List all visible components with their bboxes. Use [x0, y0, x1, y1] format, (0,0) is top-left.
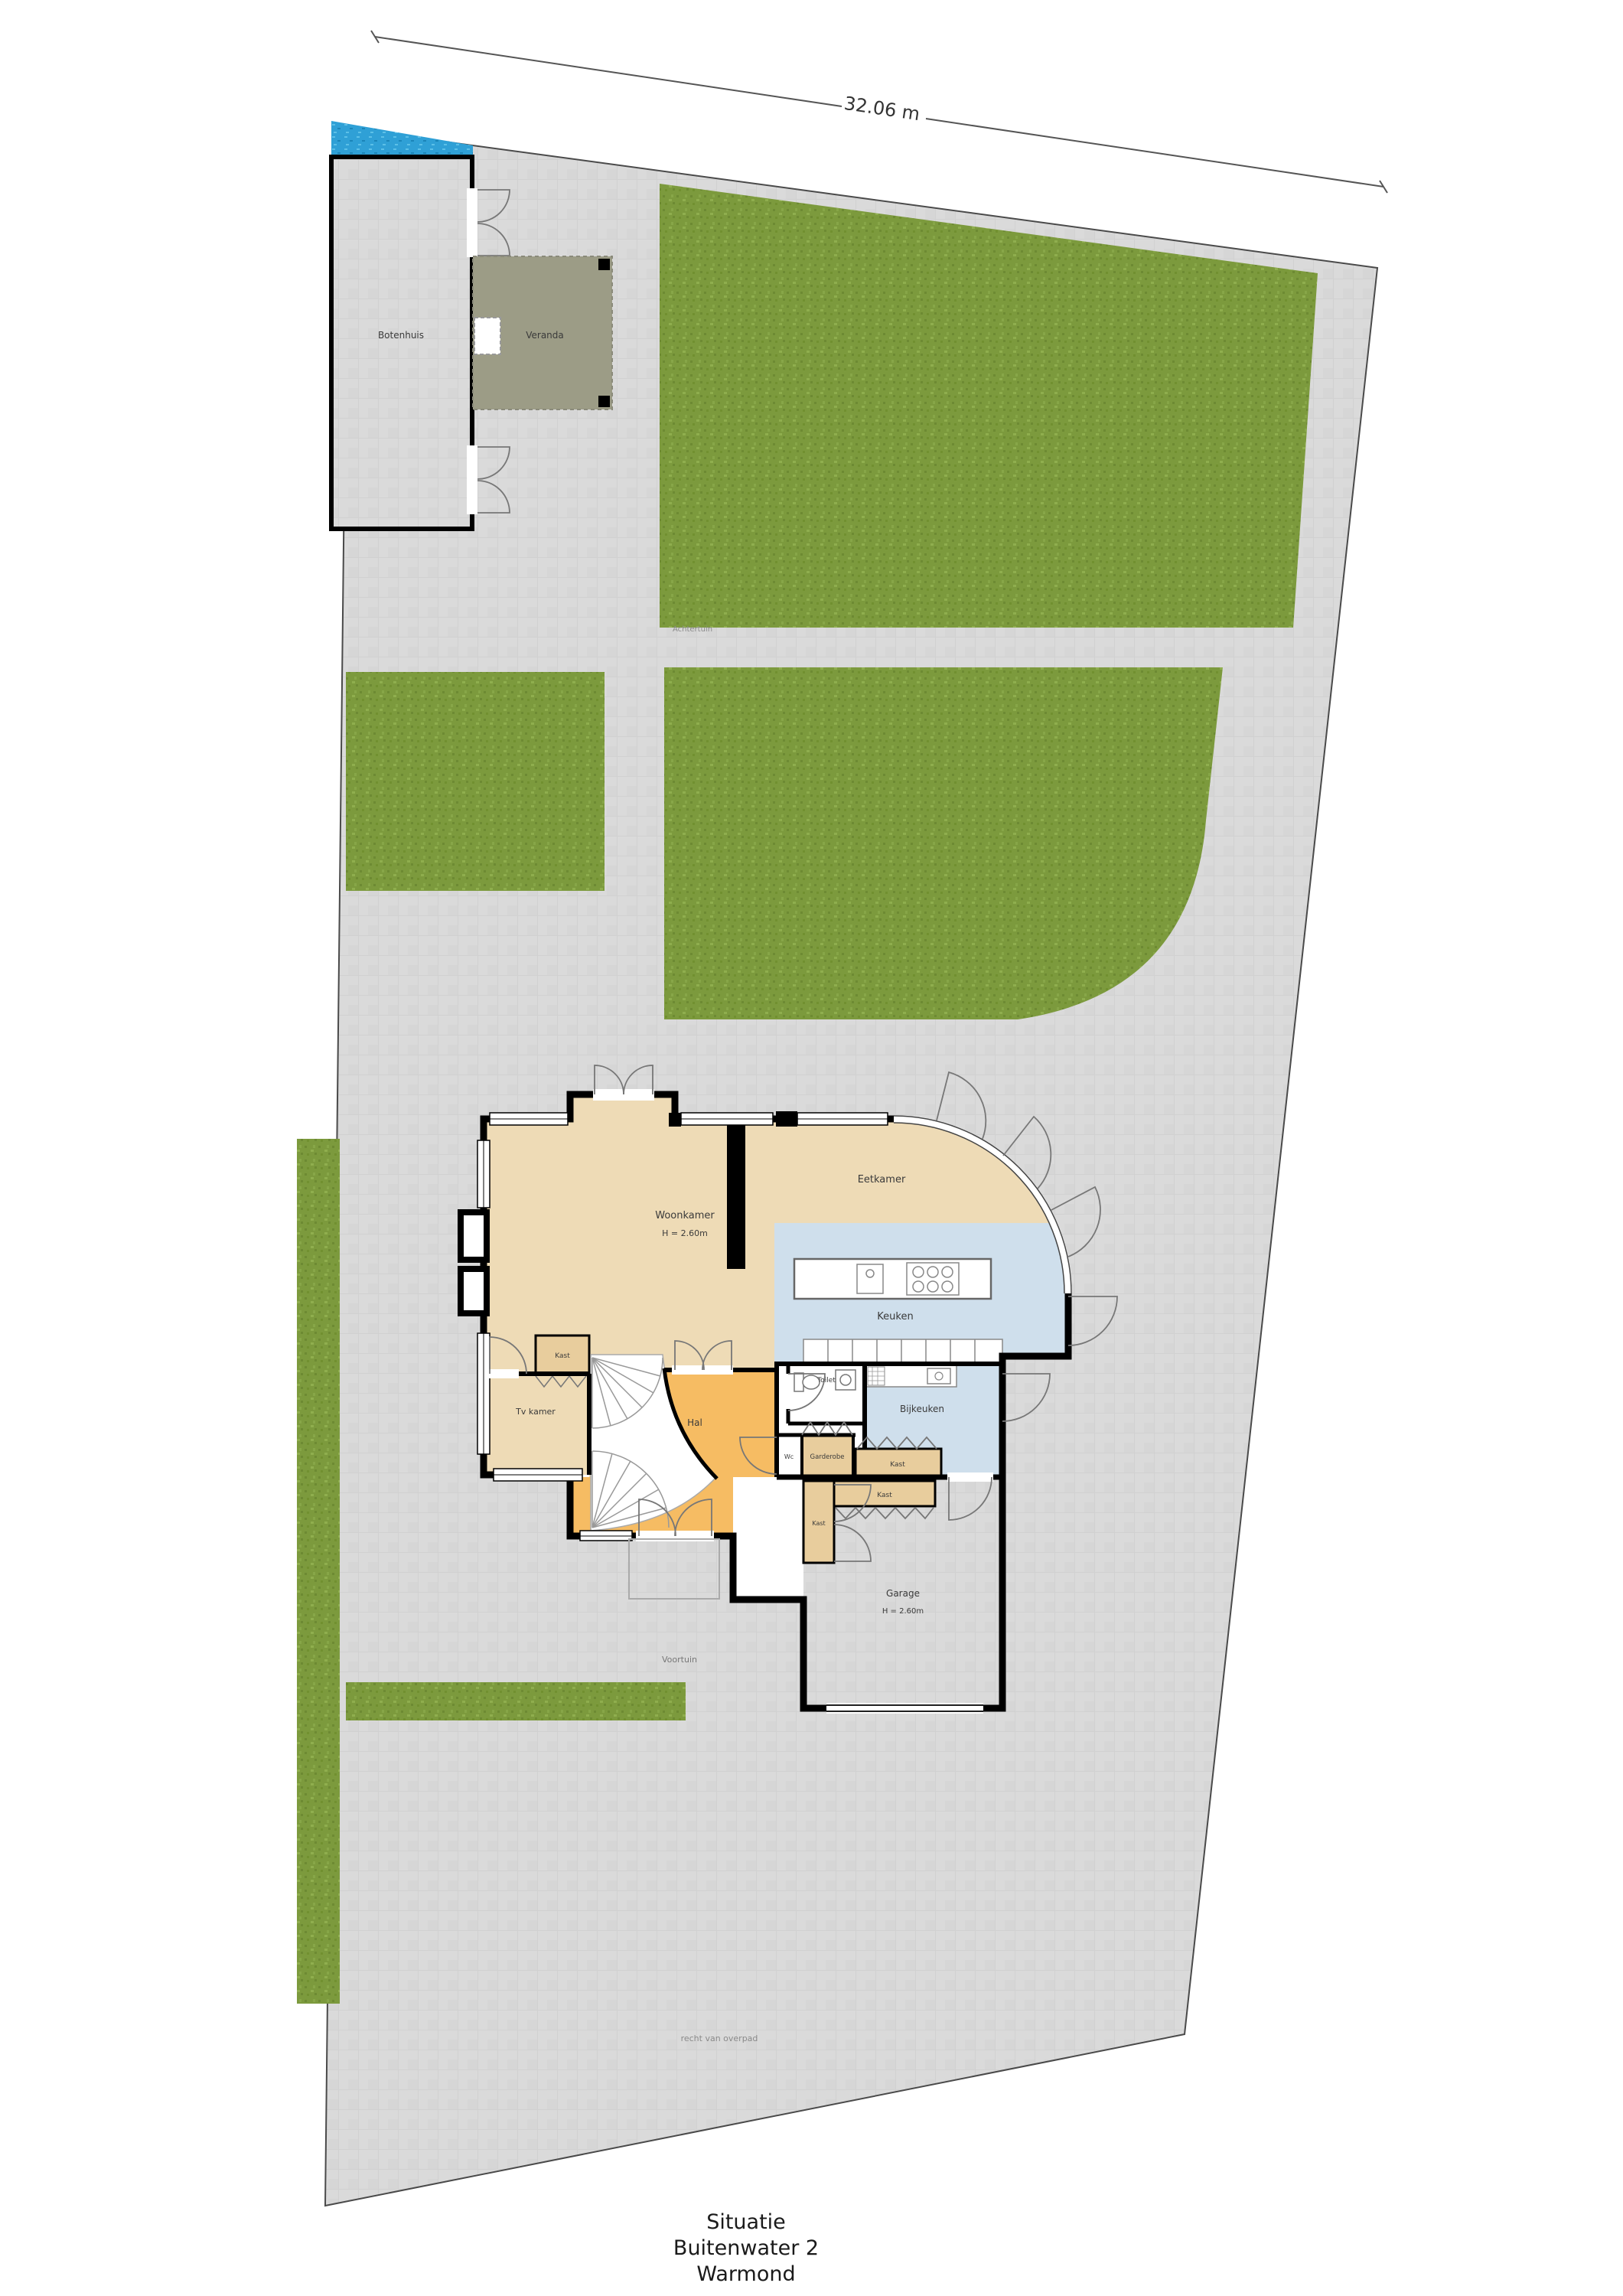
- botenhuis-door-opening-top: [467, 188, 477, 257]
- grass-front-strip: [346, 1682, 686, 1720]
- bijkeuken-label: Bijkeuken: [900, 1404, 944, 1414]
- garage-height-label: H = 2.60m: [882, 1607, 924, 1616]
- window: [580, 1531, 632, 1541]
- bijkeuken-sink: [927, 1368, 950, 1384]
- kitchen-cabinets: [803, 1339, 1002, 1364]
- botenhuis-door-opening-bottom: [467, 445, 477, 514]
- veranda-post-top: [598, 259, 610, 270]
- veranda-label: Veranda: [526, 330, 564, 341]
- window: [681, 1113, 773, 1125]
- kast-garage-top-label: Kast: [877, 1492, 892, 1499]
- window: [797, 1113, 888, 1125]
- easement-label: recht van overpad: [681, 2033, 758, 2043]
- garderobe-label: Garderobe: [810, 1453, 845, 1461]
- grass-left-strip: [297, 1139, 340, 2004]
- grass-mid-right: [664, 667, 1223, 1019]
- toilet-label: Toilet: [816, 1377, 836, 1384]
- dimension-label: 32.06 m: [842, 93, 921, 125]
- kast-hal-label: Kast: [555, 1352, 570, 1360]
- window: [494, 1469, 582, 1481]
- kast-right-label: Kast: [890, 1461, 905, 1469]
- bijkeuken-counter: [866, 1365, 957, 1387]
- veranda-table: [474, 318, 500, 354]
- kitchen-island: [794, 1259, 991, 1299]
- title-block: Situatie Buitenwater 2 Warmond: [673, 2210, 819, 2286]
- title-line-2: Buitenwater 2: [673, 2236, 819, 2260]
- woonkamer-label: Woonkamer: [655, 1210, 715, 1221]
- achtertuin-label: Achtertuin: [673, 625, 712, 634]
- veranda-area: Veranda: [473, 256, 612, 409]
- woonkamer-height-label: H = 2.60m: [662, 1228, 708, 1238]
- keuken-label: Keuken: [877, 1311, 913, 1322]
- water-edge: [331, 121, 473, 157]
- hal-label: Hal: [687, 1417, 702, 1428]
- voortuin-label: Voortuin: [662, 1655, 697, 1665]
- garage-label: Garage: [886, 1588, 920, 1599]
- botenhuis-room: [331, 157, 472, 529]
- eetkamer-label: Eetkamer: [858, 1174, 906, 1186]
- island-stove: [907, 1263, 959, 1295]
- floor-plan-svg: 32.06 m Botenhuis Veranda Achtertuin: [0, 0, 1623, 2296]
- window: [477, 1333, 490, 1454]
- grass-mid-left: [346, 672, 605, 891]
- kast-garage-left-label: Kast: [812, 1520, 825, 1527]
- tvkamer-label: Tv kamer: [515, 1407, 556, 1417]
- wc-label: Wc: [784, 1453, 794, 1460]
- title-line-3: Warmond: [696, 2262, 795, 2286]
- island-sink: [857, 1264, 883, 1293]
- room-tvkamer: [484, 1374, 589, 1475]
- botenhuis-label: Botenhuis: [378, 330, 424, 341]
- window: [477, 1140, 490, 1208]
- veranda-post-bottom: [598, 396, 610, 407]
- window: [490, 1113, 568, 1125]
- site-plan-page: 32.06 m Botenhuis Veranda Achtertuin: [0, 0, 1623, 2296]
- title-line-1: Situatie: [706, 2210, 786, 2234]
- chimney: [458, 1209, 490, 1316]
